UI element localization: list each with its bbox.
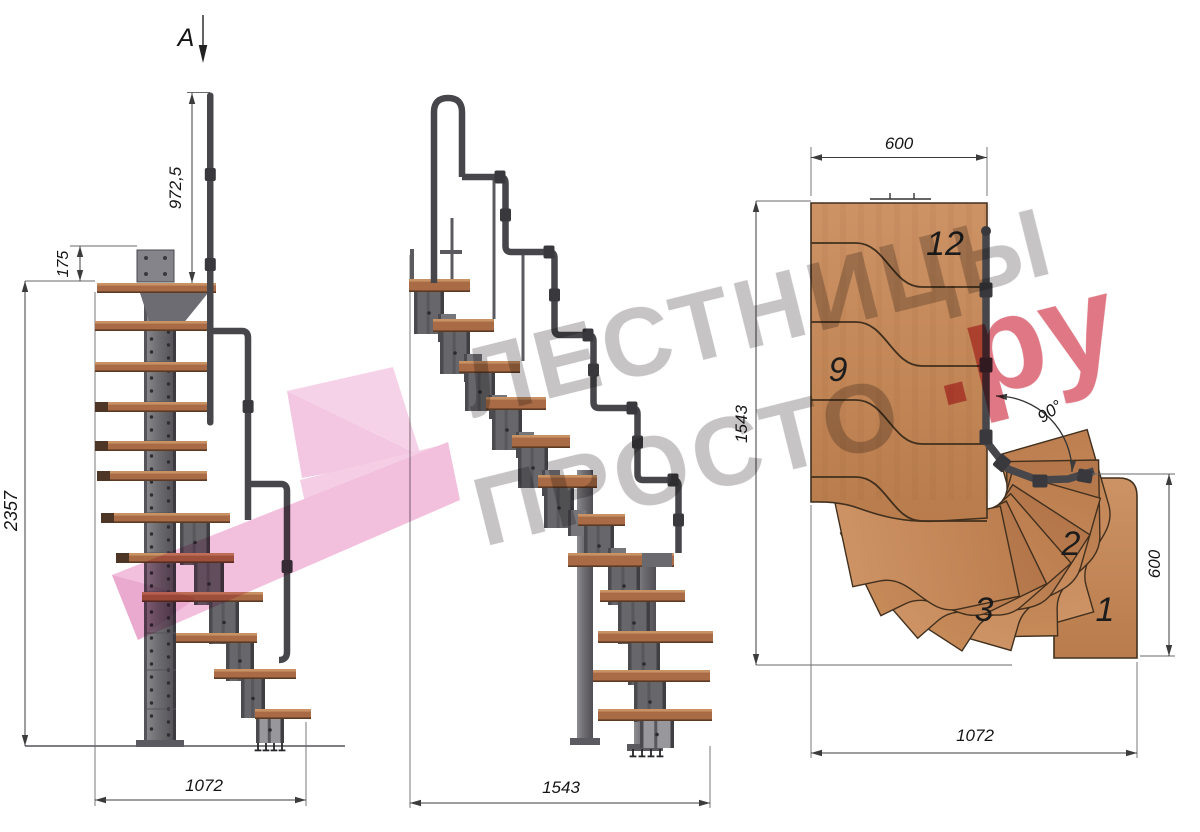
svg-text:1543: 1543 [542, 778, 580, 797]
svg-text:175: 175 [55, 251, 72, 278]
svg-text:1: 1 [1096, 591, 1115, 629]
svg-text:1072: 1072 [956, 726, 994, 745]
svg-text:600: 600 [885, 134, 914, 153]
svg-text:1072: 1072 [185, 776, 223, 795]
svg-text:2: 2 [1061, 525, 1081, 563]
svg-text:600: 600 [1145, 549, 1164, 578]
svg-text:3: 3 [975, 591, 994, 629]
svg-text:972,5: 972,5 [166, 166, 185, 209]
svg-text:2357: 2357 [1, 490, 21, 532]
svg-text:A: A [176, 24, 195, 52]
